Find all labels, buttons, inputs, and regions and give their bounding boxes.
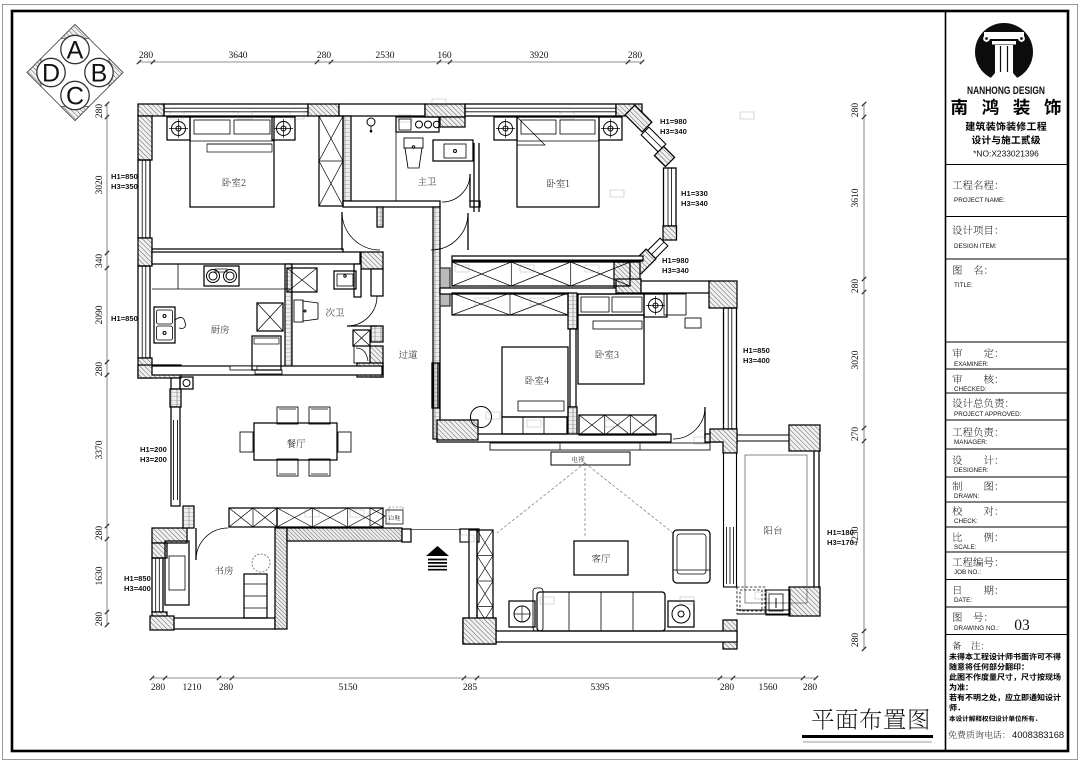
svg-text:SCALE:: SCALE: bbox=[954, 544, 977, 551]
svg-text:270: 270 bbox=[851, 427, 861, 442]
svg-text:D: D bbox=[42, 60, 60, 88]
svg-text:*NO:X233021396: *NO:X233021396 bbox=[973, 149, 1039, 159]
svg-text:CHECKED:: CHECKED: bbox=[954, 386, 987, 393]
svg-text:5395: 5395 bbox=[591, 683, 610, 693]
svg-text:280: 280 bbox=[95, 526, 105, 541]
svg-text:3020: 3020 bbox=[95, 175, 105, 194]
svg-text:4008383168: 4008383168 bbox=[1012, 729, 1064, 740]
svg-text:280: 280 bbox=[139, 51, 154, 61]
svg-text:DESIGN ITEM:: DESIGN ITEM: bbox=[954, 243, 997, 250]
svg-text:JOB NO.:: JOB NO.: bbox=[954, 569, 981, 576]
svg-text:H3=340: H3=340 bbox=[660, 127, 687, 136]
svg-text:3610: 3610 bbox=[851, 188, 861, 207]
svg-text:NANHONG DESIGN: NANHONG DESIGN bbox=[967, 85, 1045, 97]
svg-text:280: 280 bbox=[851, 633, 861, 648]
svg-text:2530: 2530 bbox=[376, 51, 395, 61]
svg-text:160: 160 bbox=[437, 51, 452, 61]
svg-text:TITLE:: TITLE: bbox=[954, 282, 973, 289]
svg-text:PROJECT NAME:: PROJECT NAME: bbox=[954, 197, 1005, 204]
svg-text:H3=340: H3=340 bbox=[681, 199, 708, 208]
svg-text:DRAWN:: DRAWN: bbox=[954, 493, 980, 500]
svg-text:MANAGER:: MANAGER: bbox=[954, 439, 988, 446]
svg-text:DRAWING NO.:: DRAWING NO.: bbox=[954, 625, 999, 632]
svg-text:EXAMINER:: EXAMINER: bbox=[954, 361, 989, 368]
svg-text:H3=350: H3=350 bbox=[111, 182, 138, 191]
svg-text:280: 280 bbox=[803, 683, 818, 693]
svg-text:H1=850: H1=850 bbox=[111, 172, 138, 181]
svg-text:DESIGNER:: DESIGNER: bbox=[954, 467, 989, 474]
svg-text:3370: 3370 bbox=[95, 440, 105, 459]
svg-text:1560: 1560 bbox=[759, 683, 778, 693]
svg-text:H3=400: H3=400 bbox=[124, 584, 151, 593]
svg-text:H1=330: H1=330 bbox=[681, 189, 708, 198]
svg-text:280: 280 bbox=[219, 683, 234, 693]
svg-text:H1=850: H1=850 bbox=[124, 574, 151, 583]
svg-text:3640: 3640 bbox=[229, 51, 248, 61]
svg-text:H1=980: H1=980 bbox=[662, 256, 689, 265]
svg-text:5150: 5150 bbox=[339, 683, 358, 693]
svg-text:285: 285 bbox=[463, 683, 478, 693]
svg-text:H3=400: H3=400 bbox=[743, 356, 770, 365]
svg-text:C: C bbox=[66, 83, 84, 111]
svg-text:H3=340: H3=340 bbox=[662, 266, 689, 275]
svg-text:PROJECT APPROVED:: PROJECT APPROVED: bbox=[954, 411, 1022, 418]
svg-text:280: 280 bbox=[151, 683, 166, 693]
svg-text:280: 280 bbox=[720, 683, 735, 693]
svg-text:280: 280 bbox=[317, 51, 332, 61]
svg-text:280: 280 bbox=[851, 103, 861, 118]
svg-text:H1=850: H1=850 bbox=[743, 346, 770, 355]
svg-text:280: 280 bbox=[95, 362, 105, 377]
svg-text:340: 340 bbox=[95, 254, 105, 269]
svg-text:H1=200: H1=200 bbox=[140, 445, 167, 454]
svg-text:H3=170: H3=170 bbox=[827, 538, 854, 547]
svg-text:280: 280 bbox=[851, 279, 861, 294]
svg-text:1630: 1630 bbox=[95, 566, 105, 585]
svg-text:3020: 3020 bbox=[851, 350, 861, 369]
svg-text:H3=200: H3=200 bbox=[140, 455, 167, 464]
svg-text:280: 280 bbox=[95, 612, 105, 627]
svg-text:280: 280 bbox=[95, 104, 105, 119]
svg-text:H1=980: H1=980 bbox=[660, 117, 687, 126]
svg-text:3920: 3920 bbox=[530, 51, 549, 61]
svg-text:DATE:: DATE: bbox=[954, 597, 972, 604]
svg-text:CHECK:: CHECK: bbox=[954, 518, 978, 525]
svg-text:2090: 2090 bbox=[95, 305, 105, 324]
svg-text:1210: 1210 bbox=[183, 683, 202, 693]
svg-text:03: 03 bbox=[1014, 617, 1030, 634]
svg-text:H1=850: H1=850 bbox=[111, 314, 138, 323]
svg-text:B: B bbox=[91, 60, 108, 88]
svg-text:A: A bbox=[67, 37, 84, 65]
svg-text:H1=180: H1=180 bbox=[827, 528, 854, 537]
svg-text:280: 280 bbox=[628, 51, 643, 61]
